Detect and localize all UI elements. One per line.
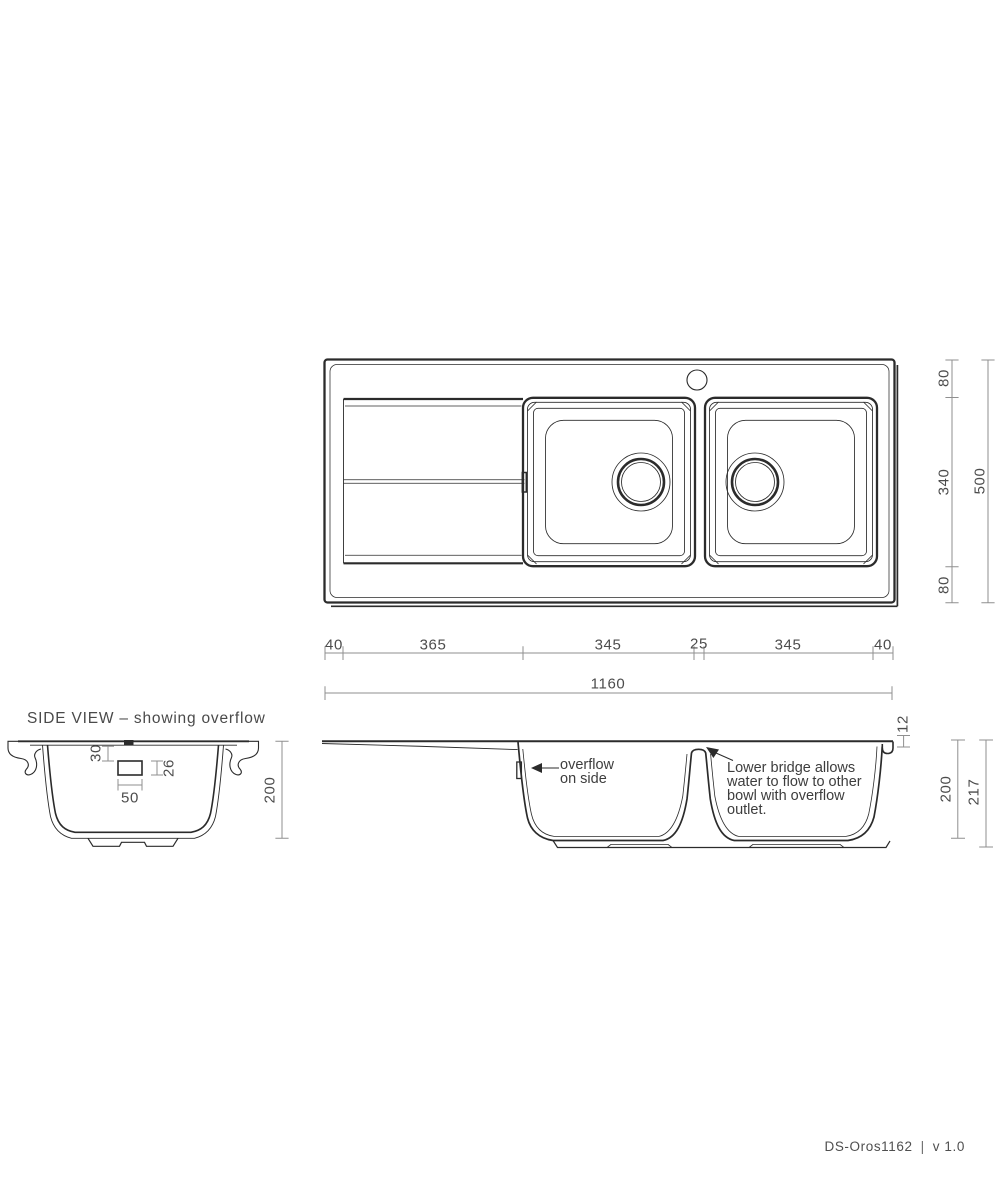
dim-drainer-width: 365 [420,638,447,653]
dim-overall-width: 1160 [591,677,626,692]
rim-height-bracket [897,736,910,748]
bowl-base [88,838,178,846]
bridge-annotation-line3: bowl with overflow [727,789,862,803]
drain-right [726,453,784,511]
dim-bowl-depth-left: 200 [263,777,278,804]
dim-bowl2-width: 345 [775,638,802,653]
document-footer: DS-Oros1162 | v 1.0 [824,1139,965,1154]
side-view-title: SIDE VIEW – showing overflow [27,710,266,728]
drain-left [612,453,670,511]
bridge-annotation-line2: water to flow to other [727,775,862,789]
sink-line-art [0,0,1005,1200]
footer-divider: | [921,1139,925,1154]
bowl-right [705,398,877,566]
overflow-opening [118,761,142,775]
document-version: v 1.0 [933,1139,965,1154]
drainer-board [344,399,527,563]
bridge-annotation: Lower bridge allows water to flow to oth… [727,761,862,817]
bridge-annotation-line4: outlet. [727,803,862,817]
dim-overflow-offset: 30 [89,744,104,762]
drainer-underside [322,744,518,750]
dim-rim-height: 12 [896,715,911,733]
overflow-annotation-line2: on side [560,772,614,786]
right-mounting-clip [226,741,259,775]
dim-overflow-height: 26 [162,759,177,777]
dim-bowl1-width: 345 [595,638,622,653]
dim-top-margin: 80 [937,369,952,387]
dim-bowl-depth-right: 200 [939,776,954,803]
left-mounting-clip [8,741,41,775]
overflow-annotation-line1: overflow [560,758,614,772]
bowl-left [523,398,695,566]
dim-overall-depth: 500 [973,468,988,495]
dim-right-margin: 40 [874,638,892,653]
document-code: DS-Oros1162 [824,1139,912,1154]
clip-notch [124,740,134,746]
dim-bridge-width: 25 [690,637,708,652]
sink-edge-shadow [331,365,897,606]
dim-bowl-depth-plan: 340 [937,469,952,496]
bridge-callout-arrow [706,747,733,761]
overflow-callout-arrow [531,763,559,773]
bridge-annotation-line1: Lower bridge allows [727,761,862,775]
drawing-sheet: SIDE VIEW – showing overflow 40 365 345 … [0,0,1005,1200]
dim-overall-height: 217 [967,779,982,806]
dim-bottom-margin: 80 [937,576,952,594]
dim-left-margin: 40 [325,638,343,653]
tap-hole [687,370,707,390]
top-view-drawing [325,360,898,607]
overflow-annotation: overflow on side [560,758,614,786]
right-rim-lip [882,742,893,754]
dim-overflow-width: 50 [121,791,139,806]
